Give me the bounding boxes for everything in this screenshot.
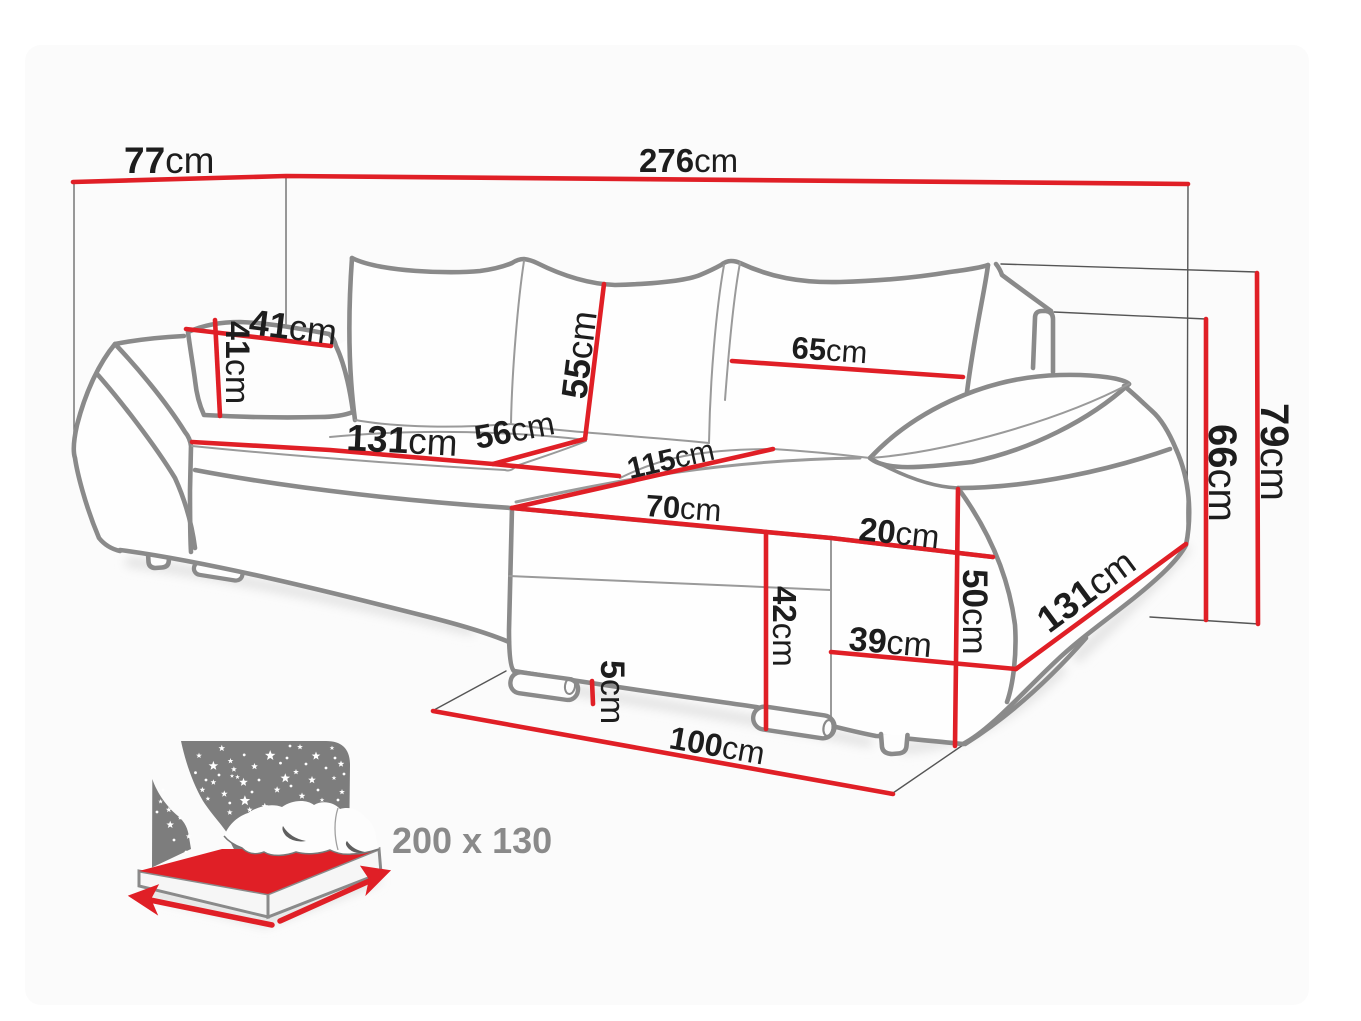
svg-text:79cm: 79cm [1252, 403, 1296, 501]
svg-text:42cm: 42cm [766, 586, 803, 667]
svg-text:39cm: 39cm [847, 620, 933, 665]
svg-text:200 x 130: 200 x 130 [392, 820, 552, 861]
svg-text:77cm: 77cm [124, 140, 214, 181]
svg-text:66cm: 66cm [1200, 424, 1244, 522]
svg-text:41cm: 41cm [218, 321, 256, 404]
svg-text:5cm: 5cm [593, 660, 631, 724]
svg-text:276cm: 276cm [639, 142, 738, 179]
svg-text:65cm: 65cm [791, 330, 869, 370]
svg-text:50cm: 50cm [955, 569, 994, 655]
svg-text:70cm: 70cm [645, 488, 723, 528]
svg-text:131cm: 131cm [346, 417, 459, 464]
